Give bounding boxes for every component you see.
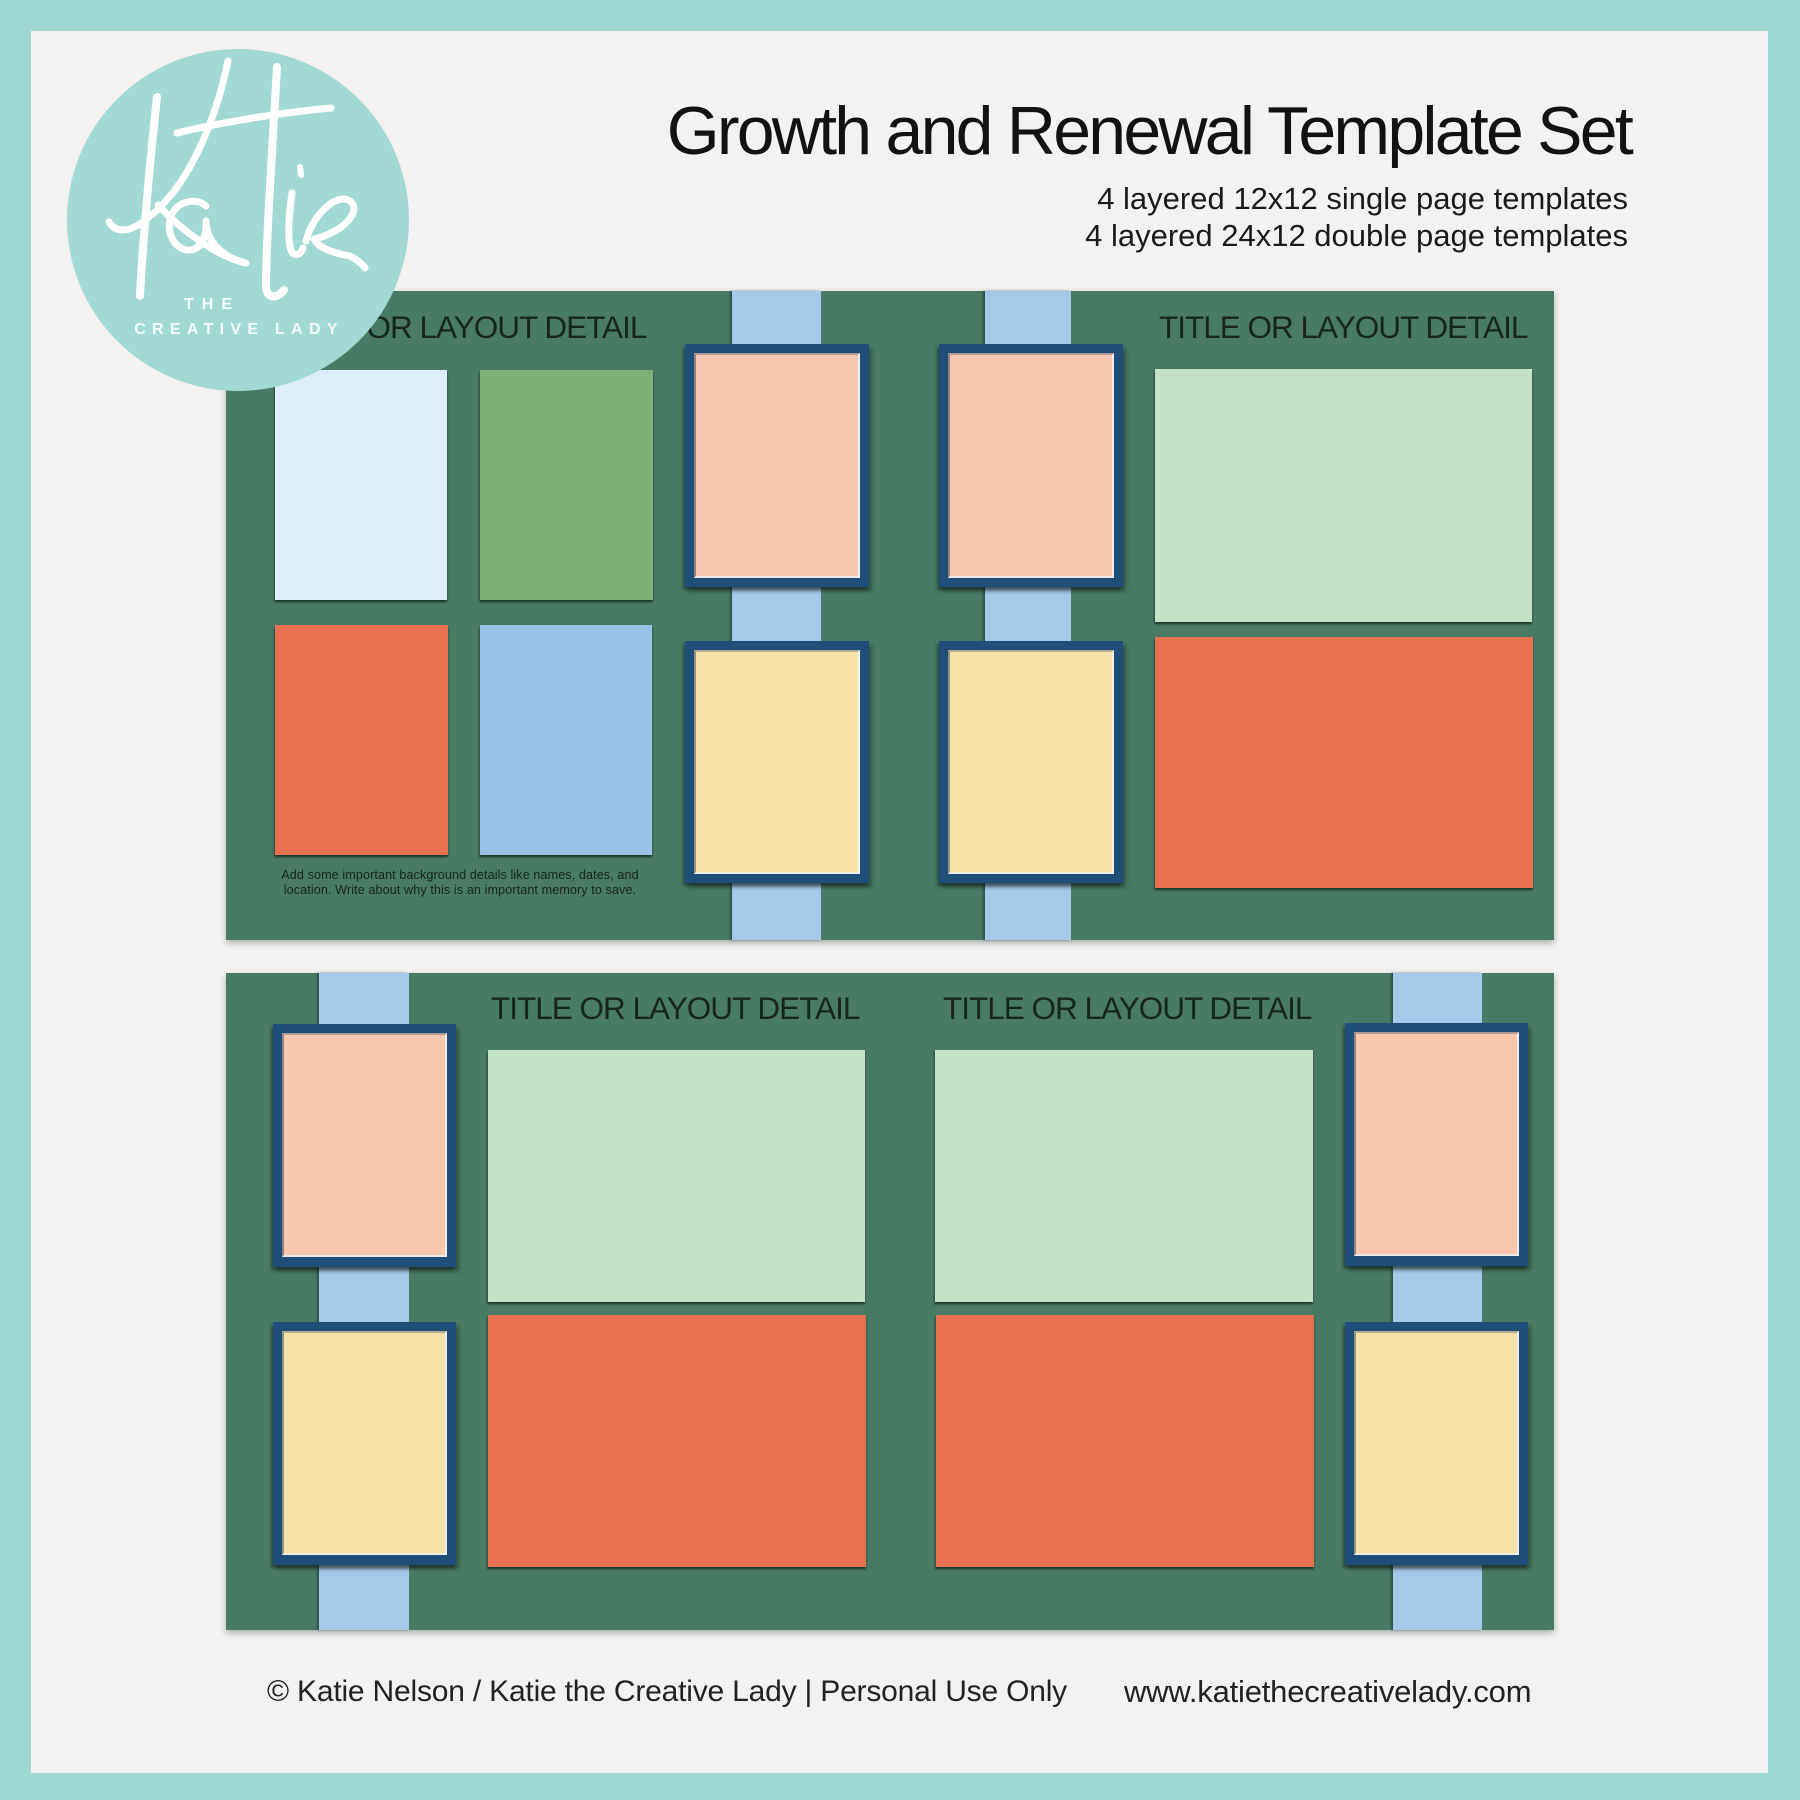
svg-text:CREATIVE LADY: CREATIVE LADY (134, 321, 344, 338)
svg-text:THE: THE (184, 296, 240, 313)
